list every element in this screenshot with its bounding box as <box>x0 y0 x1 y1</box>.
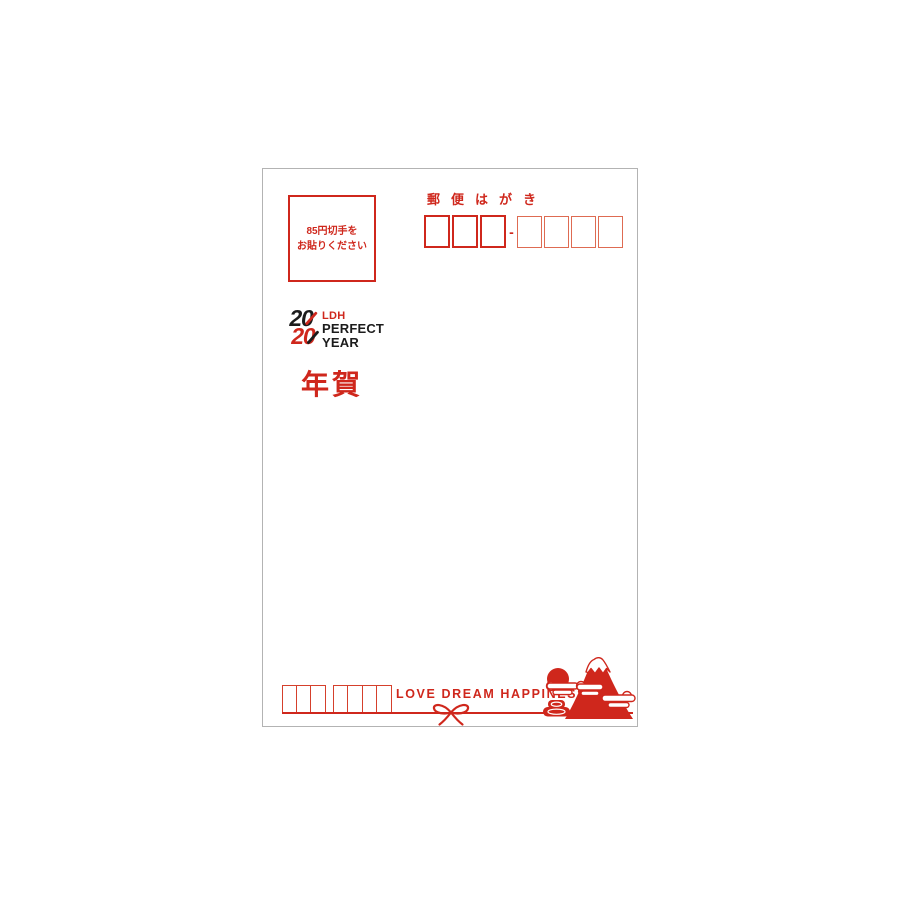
cloud-icon <box>577 682 604 696</box>
postal-code-box <box>452 215 478 248</box>
ldh-2020-logo: 20 20 LDH PERFECT YEAR <box>288 309 418 359</box>
postal-code-box <box>517 216 542 248</box>
mount-fuji-illustration <box>541 655 637 721</box>
postal-code-box <box>571 216 596 248</box>
postal-code-box <box>310 685 326 713</box>
logo-year-numbers: 20 20 <box>285 309 320 346</box>
logo-word-year: YEAR <box>322 336 384 350</box>
postal-code-box <box>598 216 623 248</box>
postal-code-box <box>544 216 569 248</box>
sender-postal-code-boxes <box>282 685 392 713</box>
stamp-placement-box: 85円切手を お貼りください <box>288 195 376 282</box>
postcard-header-title: 郵便はがき <box>427 189 547 208</box>
page-background: 85円切手を お貼りください 郵便はがき - 20 20 LDH <box>0 0 900 901</box>
postal-code-box <box>424 215 450 248</box>
logo-wordmark: LDH PERFECT YEAR <box>322 311 384 350</box>
stamp-instruction-line1: 85円切手を <box>306 224 357 239</box>
sender-postal-group2 <box>333 685 393 713</box>
recipient-postal-code-boxes: - <box>424 215 623 248</box>
ribbon-bow-icon <box>429 697 473 729</box>
cloud-icon <box>547 682 579 695</box>
sender-postal-group1 <box>282 685 326 713</box>
nenga-greeting-label: 年賀 <box>301 363 363 403</box>
postal-code-separator: - <box>508 215 515 248</box>
stamp-instruction-line2: お貼りください <box>297 239 367 254</box>
postal-code-box <box>480 215 506 248</box>
postal-code-box <box>376 685 392 713</box>
postcard: 85円切手を お貼りください 郵便はがき - 20 20 LDH <box>262 168 638 727</box>
rice-bales-icon <box>543 700 570 717</box>
logo-word-perfect: PERFECT <box>322 322 384 336</box>
